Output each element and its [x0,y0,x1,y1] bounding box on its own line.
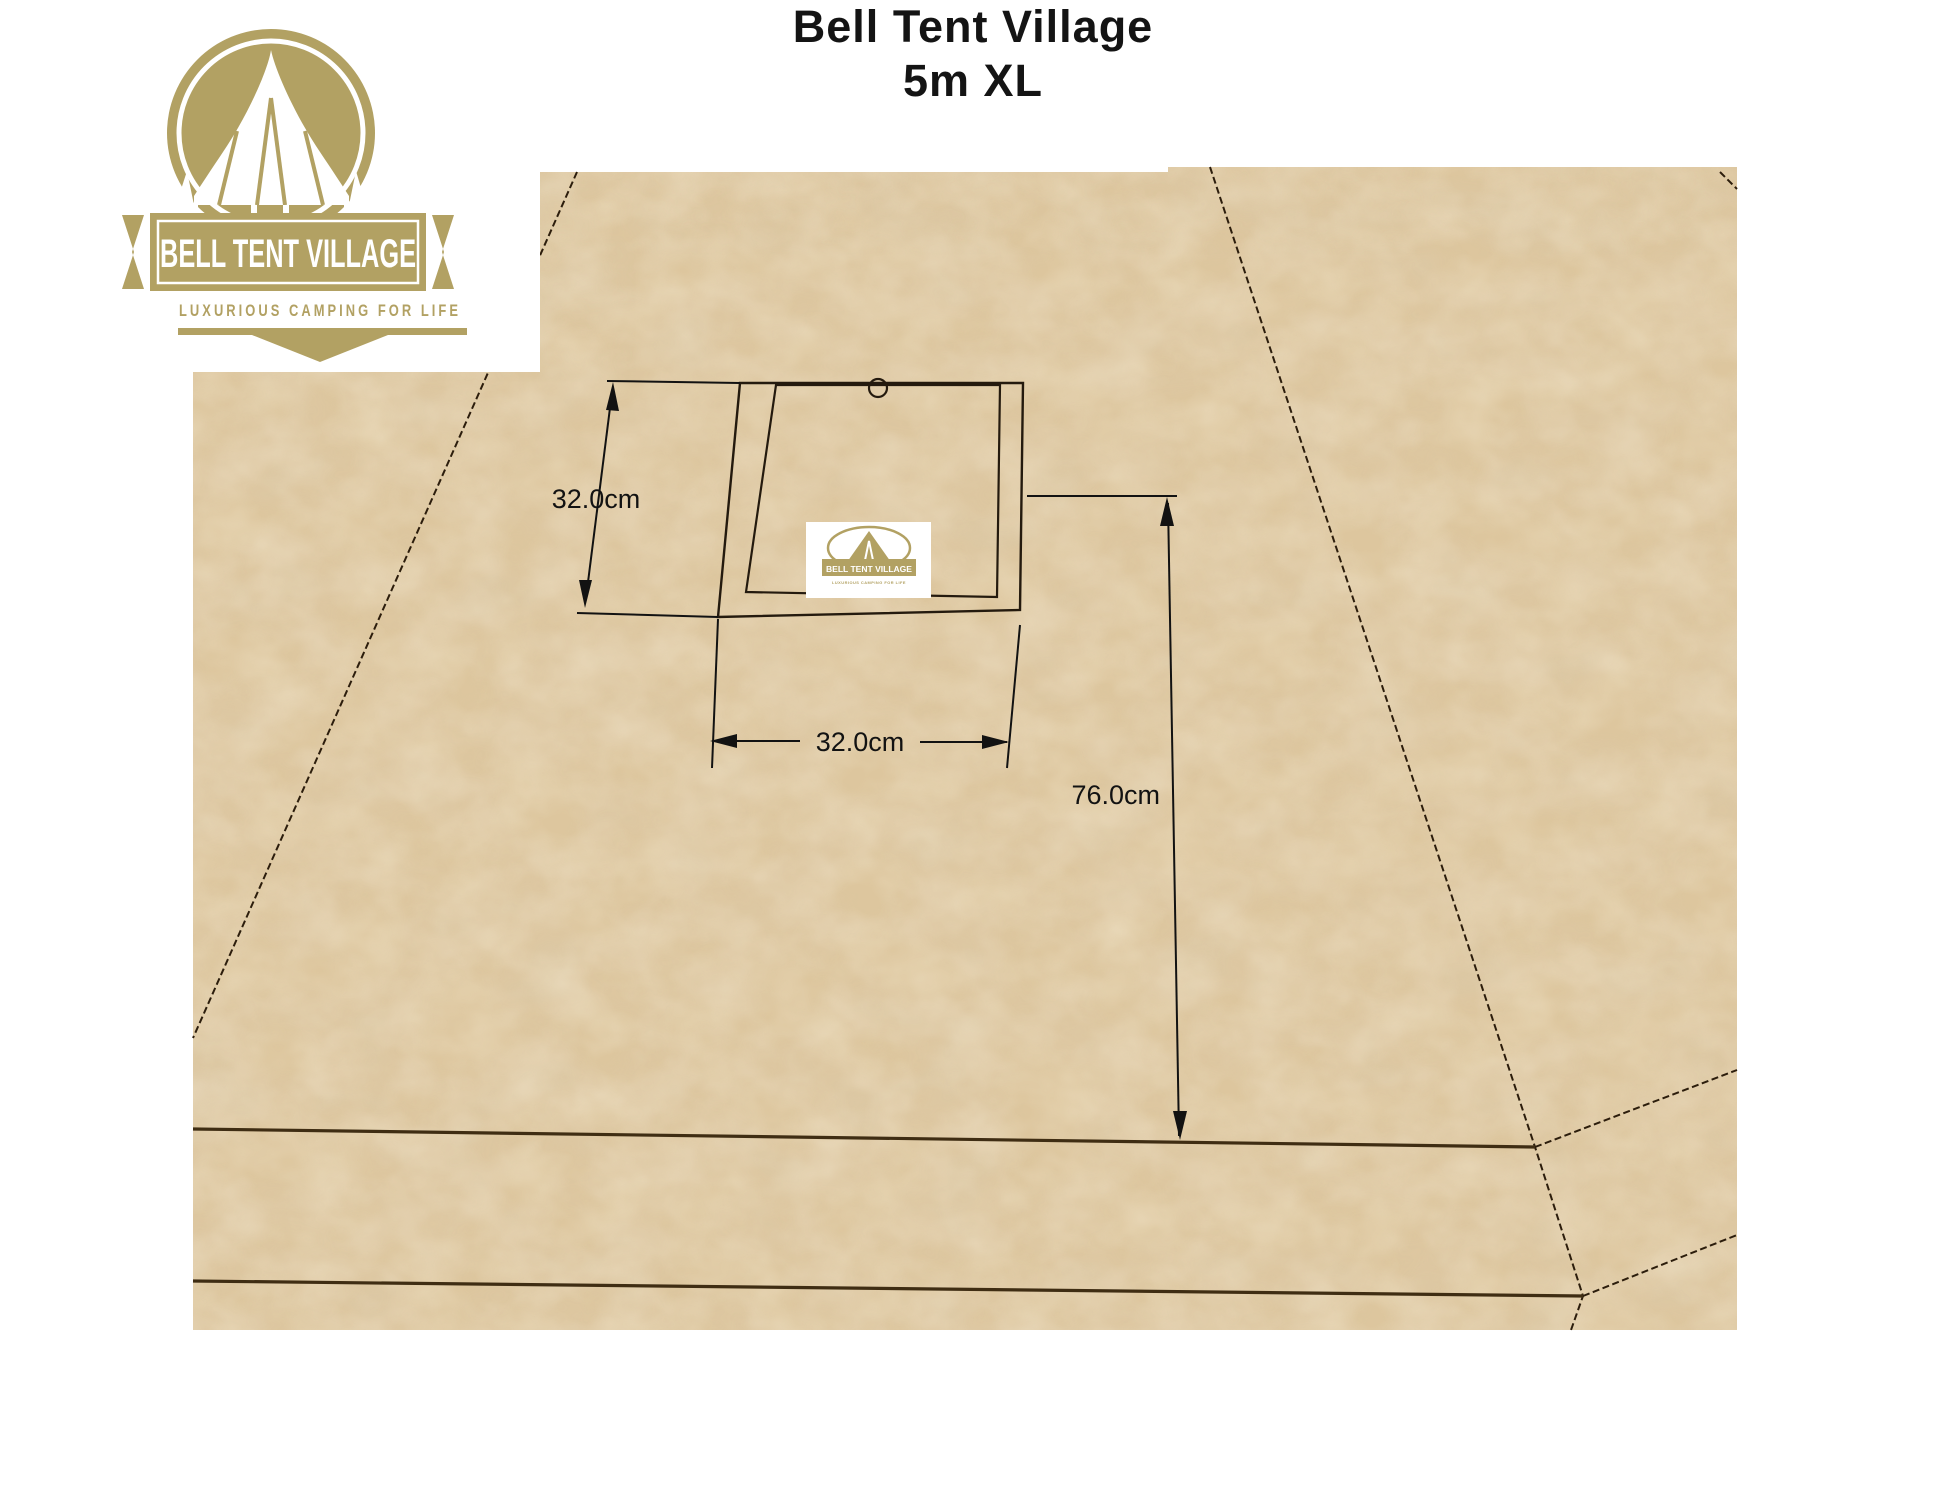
mini-logo-brand-text: BELL TENT VILLAGE [826,565,913,574]
mini-logo: BELL TENT VILLAGE LUXURIOUS CAMPING FOR … [806,522,931,598]
logo-banner: BELL TENT VILLAGE [122,213,454,291]
offset-label: 76.0cm [1071,780,1160,810]
diagram-canvas: BELL TENT VILLAGE LUXURIOUS CAMPING FOR … [0,0,1946,1504]
page: Bell Tent Village 5m XL [0,0,1946,1504]
logo-underline-bar [178,328,467,335]
logo-tagline-text: LUXURIOUS CAMPING FOR LIFE [179,301,461,320]
logo-brand-text: BELL TENT VILLAGE [160,232,416,276]
square-height-label: 32.0cm [552,484,641,514]
square-width-label: 32.0cm [816,727,905,757]
mini-logo-tagline-text: LUXURIOUS CAMPING FOR LIFE [832,580,906,585]
brand-logo: BELL TENT VILLAGE LUXURIOUS CAMPING FOR … [95,0,540,372]
